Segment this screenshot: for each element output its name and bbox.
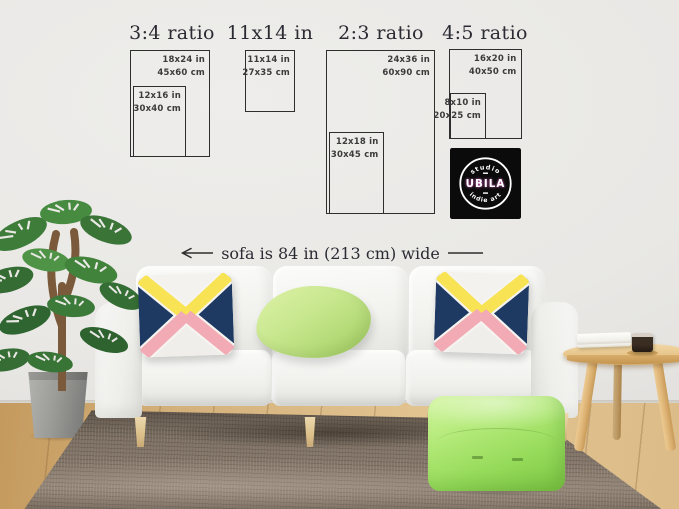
sofa-width-annotation: sofa is 84 in (213 cm) wide — [178, 240, 483, 266]
arrow-right-icon — [448, 246, 483, 260]
candle-jar — [632, 333, 653, 352]
geometric-pillow-pattern — [138, 272, 235, 357]
brand-logo-badge: studio UBILA UBILA indie art — [450, 148, 521, 219]
pouf-stitch — [512, 458, 523, 461]
logo-dash-top — [483, 172, 488, 173]
arrow-left-icon — [178, 246, 213, 260]
pouf-seam — [438, 428, 556, 455]
pouf-stitch — [472, 456, 483, 459]
frame-rect-8x10: 8x10 in 20x25 cm — [450, 93, 486, 139]
logo-dash-bottom — [483, 192, 488, 193]
frame-label-24x36: 24x36 in 60x90 cm — [382, 54, 430, 80]
geometric-pillow-left — [138, 272, 235, 357]
frame-label-16x20: 16x20 in 40x50 cm — [469, 53, 517, 79]
table-rim — [567, 355, 679, 364]
frame-label-12x16: 12x16 in 30x40 cm — [133, 90, 181, 116]
frame-rect-11x14: 11x14 in 27x35 cm — [245, 50, 295, 112]
sofa-seat-cushion — [272, 350, 405, 406]
frame-label-12x18: 12x18 in 30x45 cm — [331, 136, 379, 162]
ratio-title-2-3: 2:3 ratio — [329, 22, 433, 44]
geometric-pillow-right — [434, 271, 530, 354]
frame-rect-12x18: 12x18 in 30x45 cm — [329, 132, 384, 214]
monstera-plant — [0, 176, 140, 391]
sofa-width-text: sofa is 84 in (213 cm) wide — [221, 244, 440, 263]
living-room-size-guide: 3:4 ratio 18x24 in 45x60 cm 12x16 in 30x… — [0, 0, 679, 509]
ratio-title-3-4: 3:4 ratio — [120, 22, 224, 44]
books-stack — [577, 332, 631, 348]
brand-logo: studio UBILA UBILA indie art — [450, 148, 521, 219]
geometric-pillow-pattern — [434, 271, 530, 354]
sofa-seat-cushion — [138, 350, 271, 406]
frame-rect-12x16: 12x16 in 30x40 cm — [133, 86, 187, 157]
frame-label-8x10: 8x10 in 20x25 cm — [433, 97, 481, 123]
table-leg — [613, 358, 622, 440]
frame-label-11x14: 11x14 in 27x35 cm — [242, 54, 290, 80]
logo-name: UBILA — [466, 178, 506, 190]
ratio-title-4-5: 4:5 ratio — [433, 22, 537, 44]
ratio-title-11x14: 11x14 in — [218, 22, 322, 44]
frame-label-18x24: 18x24 in 45x60 cm — [157, 54, 205, 80]
